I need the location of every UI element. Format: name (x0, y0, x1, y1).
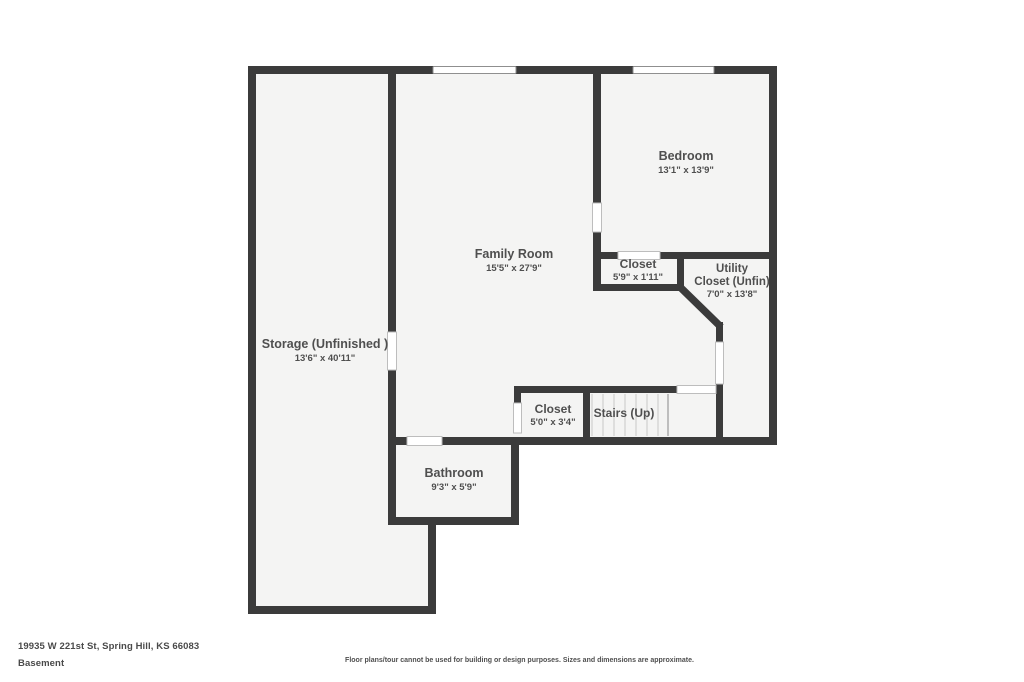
room-dimensions-bathroom: 9'3" x 5'9" (431, 482, 476, 493)
room-dimensions-bedroom: 13'1" x 13'9" (658, 165, 714, 176)
wall (388, 370, 396, 525)
wall (593, 232, 601, 291)
room-dimensions-utility-closet: 7'0" x 13'8" (707, 289, 758, 300)
room-label-utility-closet: Utility (716, 263, 749, 275)
wall (583, 393, 590, 437)
wall (514, 386, 677, 393)
wall (388, 66, 396, 332)
disclaimer-text: Floor plans/tour cannot be used for buil… (0, 657, 1024, 664)
wall (716, 384, 723, 445)
room-floor (392, 441, 515, 521)
wall (514, 386, 521, 403)
door-opening (716, 342, 724, 384)
window (433, 67, 516, 74)
room-label-bathroom: Bathroom (424, 466, 483, 480)
wall (428, 517, 436, 614)
room-dimensions-storage: 13'6" x 40'11" (295, 353, 356, 364)
floor-plan-page: Storage (Unfinished )13'6" x 40'11"Famil… (0, 0, 1024, 682)
wall (593, 252, 618, 259)
floor-plan: Storage (Unfinished )13'6" x 40'11"Famil… (0, 0, 1024, 682)
wall (593, 66, 601, 203)
room-dimensions-bedroom-closet: 5'9" x 1'11" (613, 272, 663, 283)
room-floor (252, 520, 432, 610)
door-opening (407, 437, 442, 446)
door-opening (677, 386, 716, 394)
wall (511, 437, 519, 525)
room-dimensions-stair-closet: 5'0" x 3'4" (530, 417, 575, 428)
door-opening (593, 203, 602, 232)
room-dimensions-family-room: 15'5" x 27'9" (486, 263, 542, 274)
room-label-stair-closet: Closet (535, 402, 572, 416)
room-label-bedroom-closet: Closet (620, 257, 657, 271)
door-opening (514, 403, 522, 433)
property-address: 19935 W 221st St, Spring Hill, KS 66083 (18, 641, 199, 652)
room-label-bedroom: Bedroom (659, 149, 714, 163)
window (633, 67, 714, 74)
wall (388, 517, 519, 525)
wall (442, 437, 777, 445)
door-opening (388, 332, 397, 370)
room-label-utility-closet: Closet (Unfin) (694, 276, 770, 288)
room-label-storage: Storage (Unfinished ) (262, 337, 388, 351)
room-label-stairs: Stairs (Up) (594, 406, 655, 420)
wall (593, 284, 684, 291)
wall (248, 66, 256, 614)
wall (248, 606, 436, 614)
room-label-family-room: Family Room (475, 247, 554, 261)
